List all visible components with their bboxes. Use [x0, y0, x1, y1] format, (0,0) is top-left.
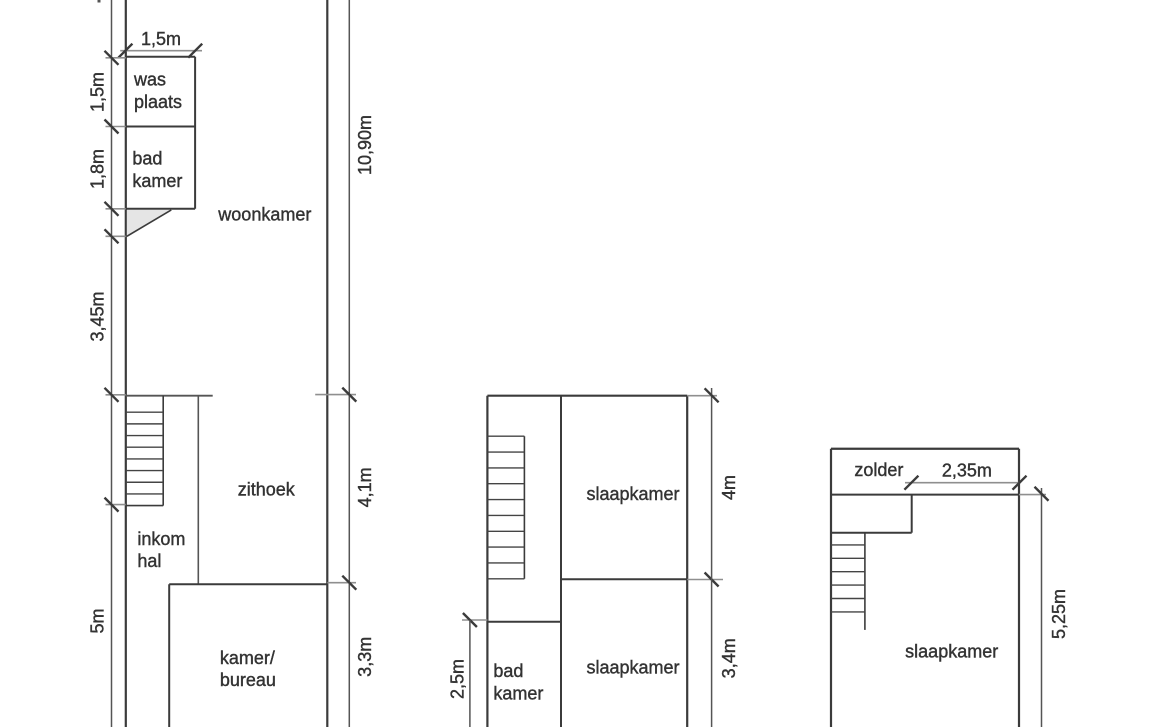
svg-text:woonkamer: woonkamer	[217, 205, 311, 225]
svg-text:kamer/: kamer/	[220, 648, 275, 668]
svg-text:3,45m: 3,45m	[88, 291, 108, 341]
svg-text:bad: bad	[493, 661, 523, 681]
svg-text:2,5m: 2,5m	[448, 659, 468, 699]
svg-text:2,35m: 2,35m	[942, 461, 992, 481]
svg-text:1,5m: 1,5m	[141, 29, 181, 49]
svg-text:zolder: zolder	[854, 460, 903, 480]
svg-text:3,3m: 3,3m	[355, 637, 375, 677]
svg-text:5,25m: 5,25m	[1049, 589, 1069, 639]
svg-text:10,90m: 10,90m	[355, 115, 375, 175]
svg-text:slaapkamer: slaapkamer	[586, 484, 679, 504]
svg-text:zithoek: zithoek	[238, 480, 296, 500]
svg-text:4m: 4m	[719, 475, 739, 500]
svg-text:bureau: bureau	[220, 670, 276, 690]
svg-text:1,5m: 1,5m	[88, 72, 108, 112]
svg-text:kamer: kamer	[493, 683, 543, 703]
svg-text:5m: 5m	[88, 608, 108, 633]
svg-text:bad: bad	[132, 149, 162, 169]
svg-text:slaapkamer: slaapkamer	[905, 642, 998, 662]
svg-text:was: was	[133, 70, 166, 90]
svg-text:inkom: inkom	[137, 529, 185, 549]
svg-text:3,4m: 3,4m	[719, 638, 739, 678]
svg-text:kamer: kamer	[132, 171, 182, 191]
svg-text:hal: hal	[137, 551, 161, 571]
svg-text:slaapkamer: slaapkamer	[586, 657, 679, 677]
svg-text:plaats: plaats	[134, 92, 182, 112]
svg-text:1,8m: 1,8m	[88, 149, 108, 189]
svg-text:4,1m: 4,1m	[355, 467, 375, 507]
